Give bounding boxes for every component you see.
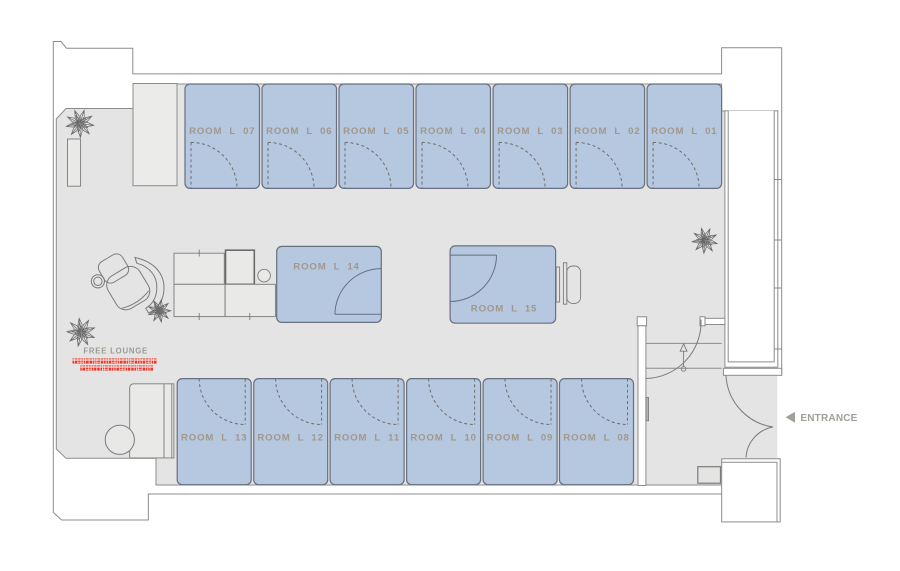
- svg-text:ROOM L 15: ROOM L 15: [471, 303, 537, 314]
- svg-text:ROOM L 06: ROOM L 06: [266, 126, 332, 137]
- svg-text:ROOM L 01: ROOM L 01: [651, 126, 717, 137]
- svg-text:ROOM L 10: ROOM L 10: [410, 433, 476, 444]
- svg-text:ROOM L 13: ROOM L 13: [181, 433, 247, 444]
- svg-text:ROOM L 08: ROOM L 08: [563, 433, 629, 444]
- svg-text:ROOM L 14: ROOM L 14: [293, 262, 359, 273]
- svg-text:ROOM L 11: ROOM L 11: [334, 433, 400, 444]
- svg-text:ENTRANCE: ENTRANCE: [800, 413, 857, 424]
- svg-text:ROOM L 05: ROOM L 05: [343, 126, 409, 137]
- svg-text:ROOM L 09: ROOM L 09: [487, 433, 553, 444]
- svg-text:ROOM L 04: ROOM L 04: [420, 126, 486, 137]
- svg-text:ROOM L 03: ROOM L 03: [497, 126, 563, 137]
- svg-text:ROOM L 07: ROOM L 07: [189, 126, 255, 137]
- svg-text:ROOM L 02: ROOM L 02: [574, 126, 640, 137]
- svg-text:ROOM L 12: ROOM L 12: [257, 433, 323, 444]
- svg-text:FREE LOUNGE: FREE LOUNGE: [83, 347, 148, 356]
